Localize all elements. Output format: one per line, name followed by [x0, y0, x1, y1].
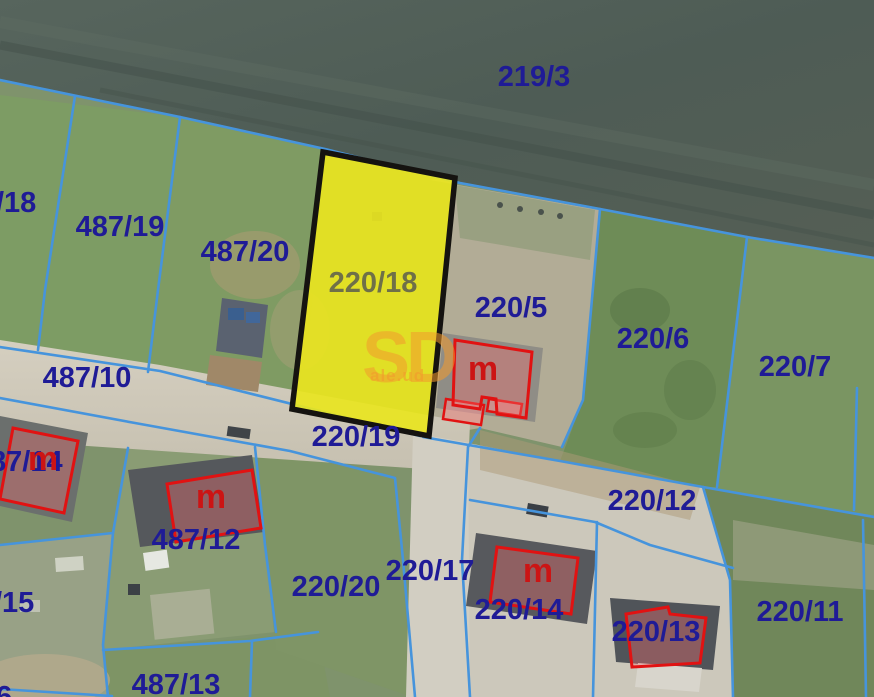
parcel-label-220-11: 220/11: [756, 596, 843, 628]
parcel-label-220-13: 220/13: [612, 616, 701, 648]
building-marker-m: m: [196, 478, 226, 516]
parcel-label-220-17: 220/17: [386, 555, 475, 587]
parcel-label-487-12: 487/12: [152, 524, 241, 556]
parcel-label-487-20: 487/20: [201, 236, 290, 268]
parcel-label-487-15: /15: [0, 587, 34, 619]
building-marker-m: m: [523, 552, 553, 590]
parcel-label-487-13: 487/13: [132, 669, 221, 697]
parcel-label-219-3: 219/3: [498, 61, 571, 93]
parcel-label-220-7: 220/7: [759, 351, 832, 383]
parcel-label-487-18: /18: [0, 187, 36, 219]
building-marker-m: m: [28, 440, 58, 478]
parcel-label-220-14: 220/14: [475, 594, 564, 626]
parcel-label-220-6: 220/6: [617, 323, 690, 355]
watermark-text-small: ale.ud: [370, 366, 425, 385]
parcel-label-220-5: 220/5: [475, 292, 548, 324]
cadastral-map[interactable]: 219/3 /18 487/19 487/20 220/18 220/5 220…: [0, 0, 874, 697]
watermark-text-big: SD: [362, 318, 455, 398]
parcel-label-220-19: 220/19: [312, 421, 401, 453]
map-canvas: 219/3 /18 487/19 487/20 220/18 220/5 220…: [0, 0, 874, 697]
parcel-label-220-18: 220/18: [329, 267, 418, 299]
parcel-label-partial-6: 6: [0, 681, 12, 697]
parcel-label-220-20: 220/20: [292, 571, 381, 603]
watermark: SD ale.ud: [362, 318, 455, 398]
parcel-label-220-12: 220/12: [608, 485, 697, 517]
parcel-label-487-10: 487/10: [43, 362, 132, 394]
building-marker-m: m: [468, 350, 498, 388]
parcel-label-487-19: 487/19: [76, 211, 165, 243]
